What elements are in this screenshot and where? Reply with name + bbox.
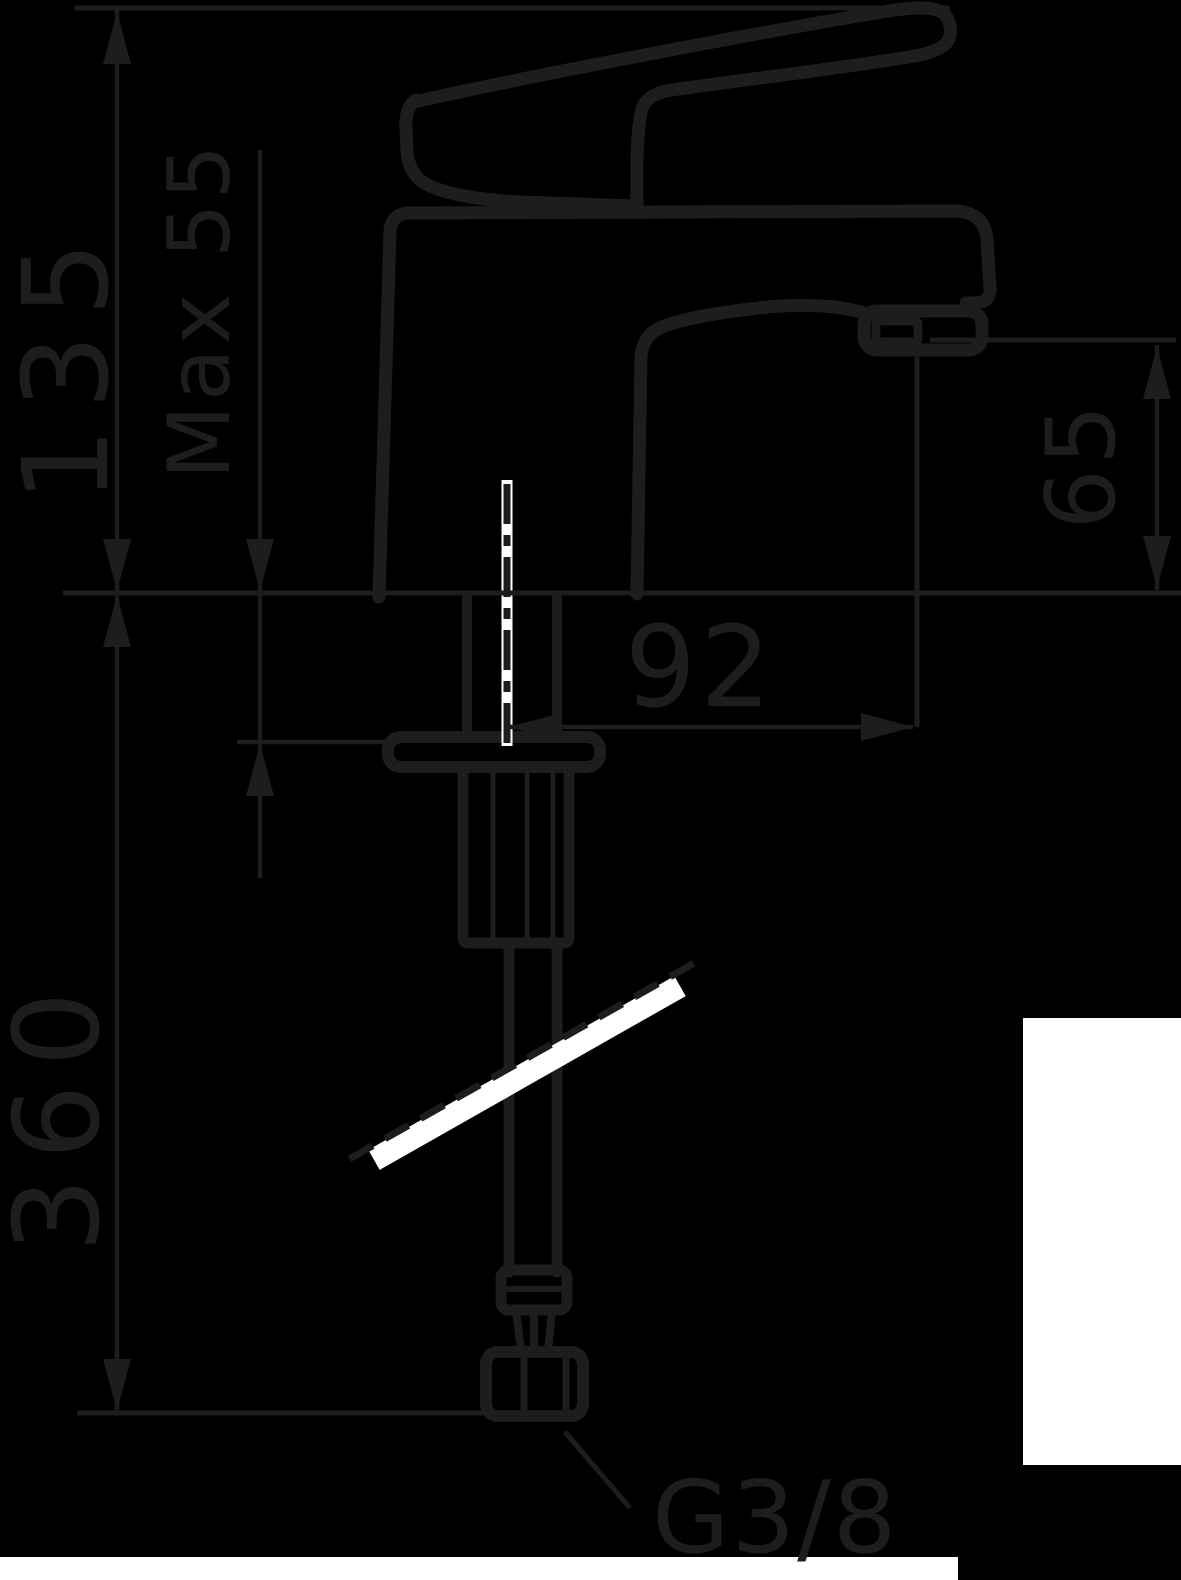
dimension-label-thread: G3/8 bbox=[652, 1459, 898, 1576]
dimension-label-spout-height: 65 bbox=[1027, 401, 1137, 530]
centerline-group bbox=[502, 480, 513, 746]
dimension-drawing-canvas: 135 Max 55 65 92 360 G3/8 bbox=[0, 0, 1181, 1580]
dimension-label-total-height: 135 bbox=[0, 223, 135, 502]
dimension-label-spout-reach: 92 bbox=[625, 603, 776, 733]
dimension-label-hose-length: 360 bbox=[0, 973, 126, 1252]
dimension-label-clamp-thickness: Max 55 bbox=[150, 141, 250, 480]
white-patch-right bbox=[1023, 1018, 1181, 1465]
faucet-dimension-drawing: 135 Max 55 65 92 360 G3/8 bbox=[0, 0, 1181, 1580]
